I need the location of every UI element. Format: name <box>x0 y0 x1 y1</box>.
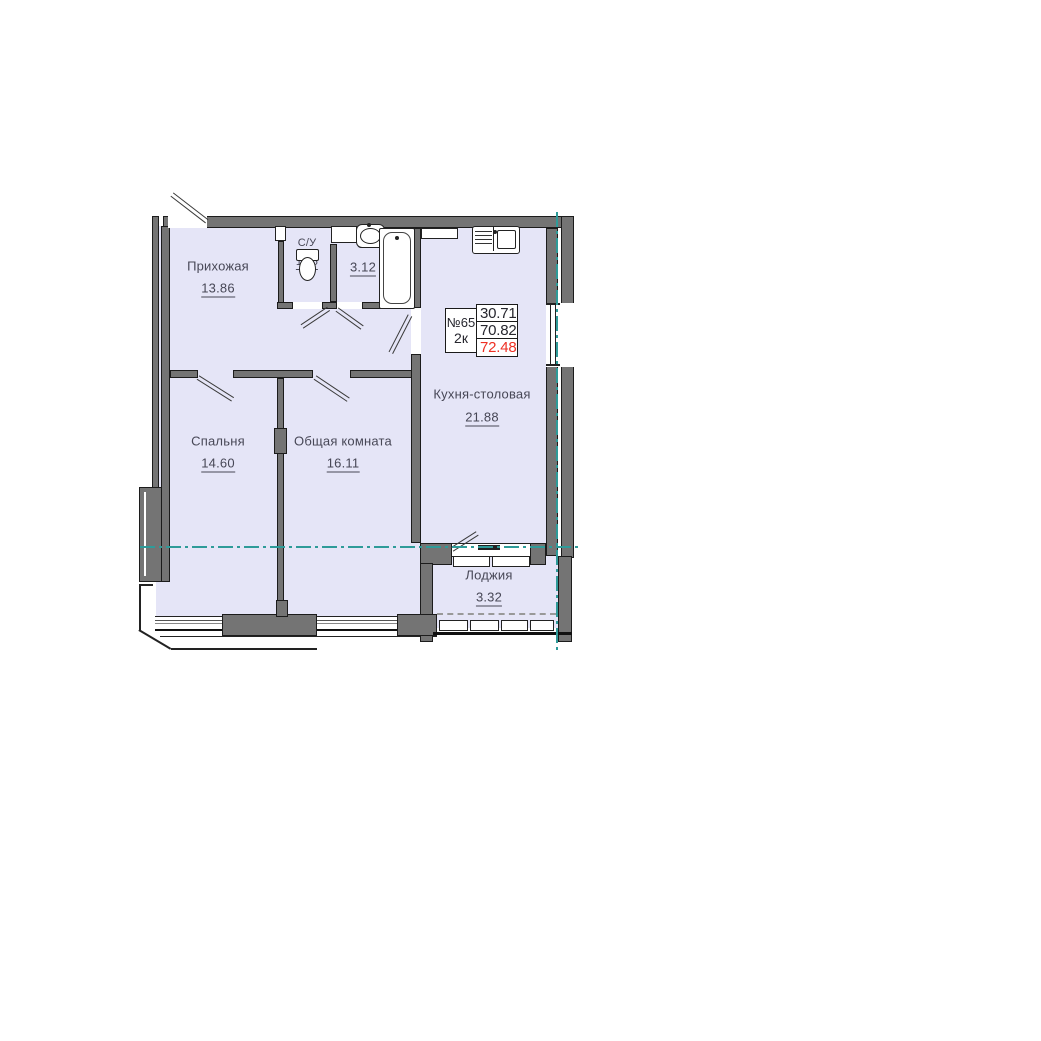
balcony-outline <box>139 584 153 586</box>
bath-door-opening <box>293 302 322 309</box>
loggia-window-section <box>470 620 499 631</box>
wall-bath-bottom <box>277 302 293 309</box>
vent-shaft <box>275 226 286 241</box>
unit-rooms-count: 2к <box>454 330 468 346</box>
total-area-value: 72.48 <box>477 339 517 356</box>
wall-hallway-rooms <box>233 370 313 378</box>
kitchen-door-opening <box>411 308 421 354</box>
room-label-loggia: Лоджия <box>465 568 512 583</box>
vent-shaft <box>421 228 458 239</box>
axis-line-horizontal <box>140 546 578 548</box>
loggia-glazing-panel <box>492 556 530 567</box>
toilet-icon <box>295 248 319 281</box>
loggia-bottom-line <box>433 632 572 635</box>
wall-kitchen <box>411 354 421 543</box>
wall-bath-mid <box>330 244 337 302</box>
wall-hallway-rooms <box>350 370 420 378</box>
wall-hallway-rooms <box>170 370 198 378</box>
facade-line <box>160 636 437 637</box>
loggia-window-section <box>501 620 528 631</box>
room-area-kitchen: 21.88 <box>465 410 499 425</box>
living-area-cell: 30.71 <box>476 304 518 322</box>
loggia-railing-dashed <box>437 613 556 615</box>
wall-bottom-pier <box>276 600 288 617</box>
balcony-outline <box>171 648 317 650</box>
room-label-hallway: Прихожая <box>187 259 249 274</box>
wall-left-inner <box>161 226 170 582</box>
balcony-outline <box>139 584 141 630</box>
room-label-kitchen: Кухня-столовая <box>433 387 530 402</box>
axis-line-vertical <box>556 212 558 650</box>
room-area-hallway: 13.86 <box>201 281 235 296</box>
total-area-cell: 72.48 <box>476 338 518 357</box>
room-area-bedroom: 14.60 <box>201 456 235 471</box>
wall-bedroom-common-column <box>274 428 287 454</box>
room-area-loggia: 3.32 <box>476 590 502 605</box>
wall-right-outer <box>561 216 574 558</box>
unit-number: №65 <box>447 315 475 330</box>
floor-plan-page: { "unit_card": { "number": "№65", "rooms… <box>0 0 1041 1041</box>
room-label-bedroom: Спальня <box>191 434 245 449</box>
living-area-value: 30.71 <box>477 305 517 322</box>
wall-bedroom-common <box>277 378 284 618</box>
kitchen-sink-icon <box>472 226 518 252</box>
window-right-glazing <box>550 305 551 365</box>
apartment-area-cell: 70.82 <box>476 321 518 339</box>
floor-plan: Прихожая 13.86 С/У 1.25 С/У 3.12 Кухня-с… <box>0 0 1041 1041</box>
room-area-common-room: 16.11 <box>327 456 360 471</box>
wall-loggia-right <box>558 556 572 642</box>
vent-shaft <box>331 226 357 243</box>
wall-left-pier-slit <box>144 492 146 576</box>
room-area-bathroom: 3.12 <box>350 260 376 275</box>
unit-id-cell: №65 2к <box>445 308 477 353</box>
loggia-window-section <box>439 620 468 631</box>
wall-bath-left <box>278 241 284 303</box>
loggia-window-section <box>530 620 554 631</box>
bathtub-icon <box>379 228 413 307</box>
room-label-common-room: Общая комната <box>294 434 392 449</box>
balcony-outline-chamfer <box>139 629 172 649</box>
wall-left-pier <box>139 487 162 582</box>
wall-bottom-pier <box>222 614 317 636</box>
wall-bottom-pier <box>397 614 437 636</box>
bath-door-opening <box>337 302 362 309</box>
apartment-area-value: 70.82 <box>477 322 517 339</box>
loggia-glazing-panel <box>453 556 490 567</box>
